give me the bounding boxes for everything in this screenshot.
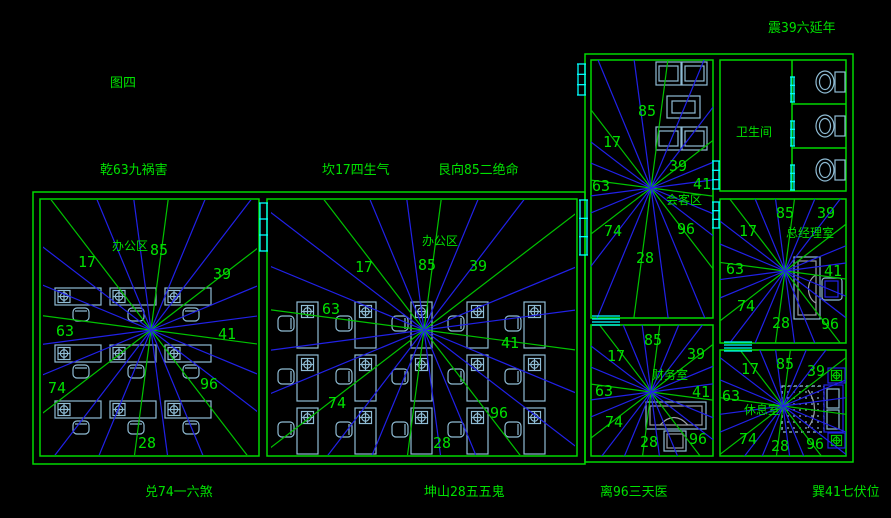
luoshu-number: 74 <box>328 396 346 411</box>
luoshu-number: 85 <box>418 258 436 273</box>
luoshu-number: 74 <box>605 415 623 430</box>
luoshu-number: 41 <box>693 177 711 192</box>
door-hatch <box>577 64 586 95</box>
luoshu-number: 63 <box>726 262 744 277</box>
room-label-finance: 财务室 <box>652 369 688 381</box>
luoshu-number: 74 <box>604 224 622 239</box>
luoshu-number: 41 <box>501 336 519 351</box>
luoshu-number: 63 <box>592 179 610 194</box>
luoshu-number: 41 <box>218 327 236 342</box>
luoshu-number: 17 <box>355 260 373 275</box>
luoshu-number: 85 <box>150 243 168 258</box>
door-hatch <box>712 202 720 228</box>
luoshu-number: 17 <box>739 224 757 239</box>
luoshu-number: 28 <box>772 316 790 331</box>
luoshu-number: 17 <box>741 362 759 377</box>
luoshu-number: 63 <box>322 302 340 317</box>
luoshu-number: 28 <box>138 436 156 451</box>
luoshu-number: 63 <box>722 389 740 404</box>
luoshu-number: 17 <box>78 255 96 270</box>
direction-label-xun: 巽41七伏位 <box>812 486 880 499</box>
luoshu-number: 28 <box>433 436 451 451</box>
luoshu-number: 39 <box>807 364 825 379</box>
direction-label-kan: 坎17四生气 <box>322 164 390 177</box>
luoshu-number: 74 <box>48 381 66 396</box>
room-label-office-left: 办公区 <box>112 240 148 252</box>
room-label-rest: 休息室 <box>744 404 780 416</box>
luoshu-number: 74 <box>739 432 757 447</box>
luoshu-number: 63 <box>56 324 74 339</box>
door-hatch <box>259 203 268 251</box>
luoshu-number: 39 <box>469 259 487 274</box>
luoshu-number: 39 <box>817 206 835 221</box>
luoshu-number: 63 <box>595 384 613 399</box>
door-hatch <box>712 161 720 189</box>
luoshu-number: 85 <box>644 333 662 348</box>
direction-label-qian: 乾63九祸害 <box>100 164 168 177</box>
luoshu-number: 96 <box>806 437 824 452</box>
luoshu-number: 28 <box>771 439 789 454</box>
luoshu-number: 17 <box>603 135 621 150</box>
luoshu-number: 28 <box>636 251 654 266</box>
luoshu-number: 74 <box>737 299 755 314</box>
room-label-bathroom: 卫生间 <box>736 126 772 138</box>
figure-label: 图四 <box>110 77 136 90</box>
direction-label-li: 离96三天医 <box>600 486 668 499</box>
luoshu-number: 39 <box>687 347 705 362</box>
room-label-meeting: 会客区 <box>666 194 702 206</box>
luoshu-number: 96 <box>677 222 695 237</box>
luoshu-number: 96 <box>490 406 508 421</box>
luoshu-number: 96 <box>200 377 218 392</box>
luoshu-number: 17 <box>607 349 625 364</box>
luoshu-number: 39 <box>213 267 231 282</box>
luoshu-number: 85 <box>776 206 794 221</box>
luoshu-number: 85 <box>776 357 794 372</box>
luoshu-number: 41 <box>692 385 710 400</box>
luoshu-number: 96 <box>689 432 707 447</box>
luoshu-number: 39 <box>669 159 687 174</box>
direction-label-zhen: 震39六延年 <box>768 22 836 35</box>
room-label-gm: 总经理室 <box>786 227 834 239</box>
luoshu-number: 85 <box>638 104 656 119</box>
door-hatch <box>579 200 588 255</box>
direction-label-dui: 兑74一六煞 <box>145 486 213 499</box>
luoshu-number: 28 <box>640 435 658 450</box>
direction-label-gen: 艮向85二绝命 <box>438 164 519 177</box>
direction-label-kun: 坤山28五五鬼 <box>424 486 505 499</box>
luoshu-number: 41 <box>824 264 842 279</box>
cad-viewport[interactable]: 图四 乾63九祸害 坎17四生气 艮向85二绝命 震39六延年 兑74一六煞 坤… <box>0 0 891 518</box>
luoshu-number: 96 <box>821 317 839 332</box>
room-label-office-middle: 办公区 <box>422 235 458 247</box>
